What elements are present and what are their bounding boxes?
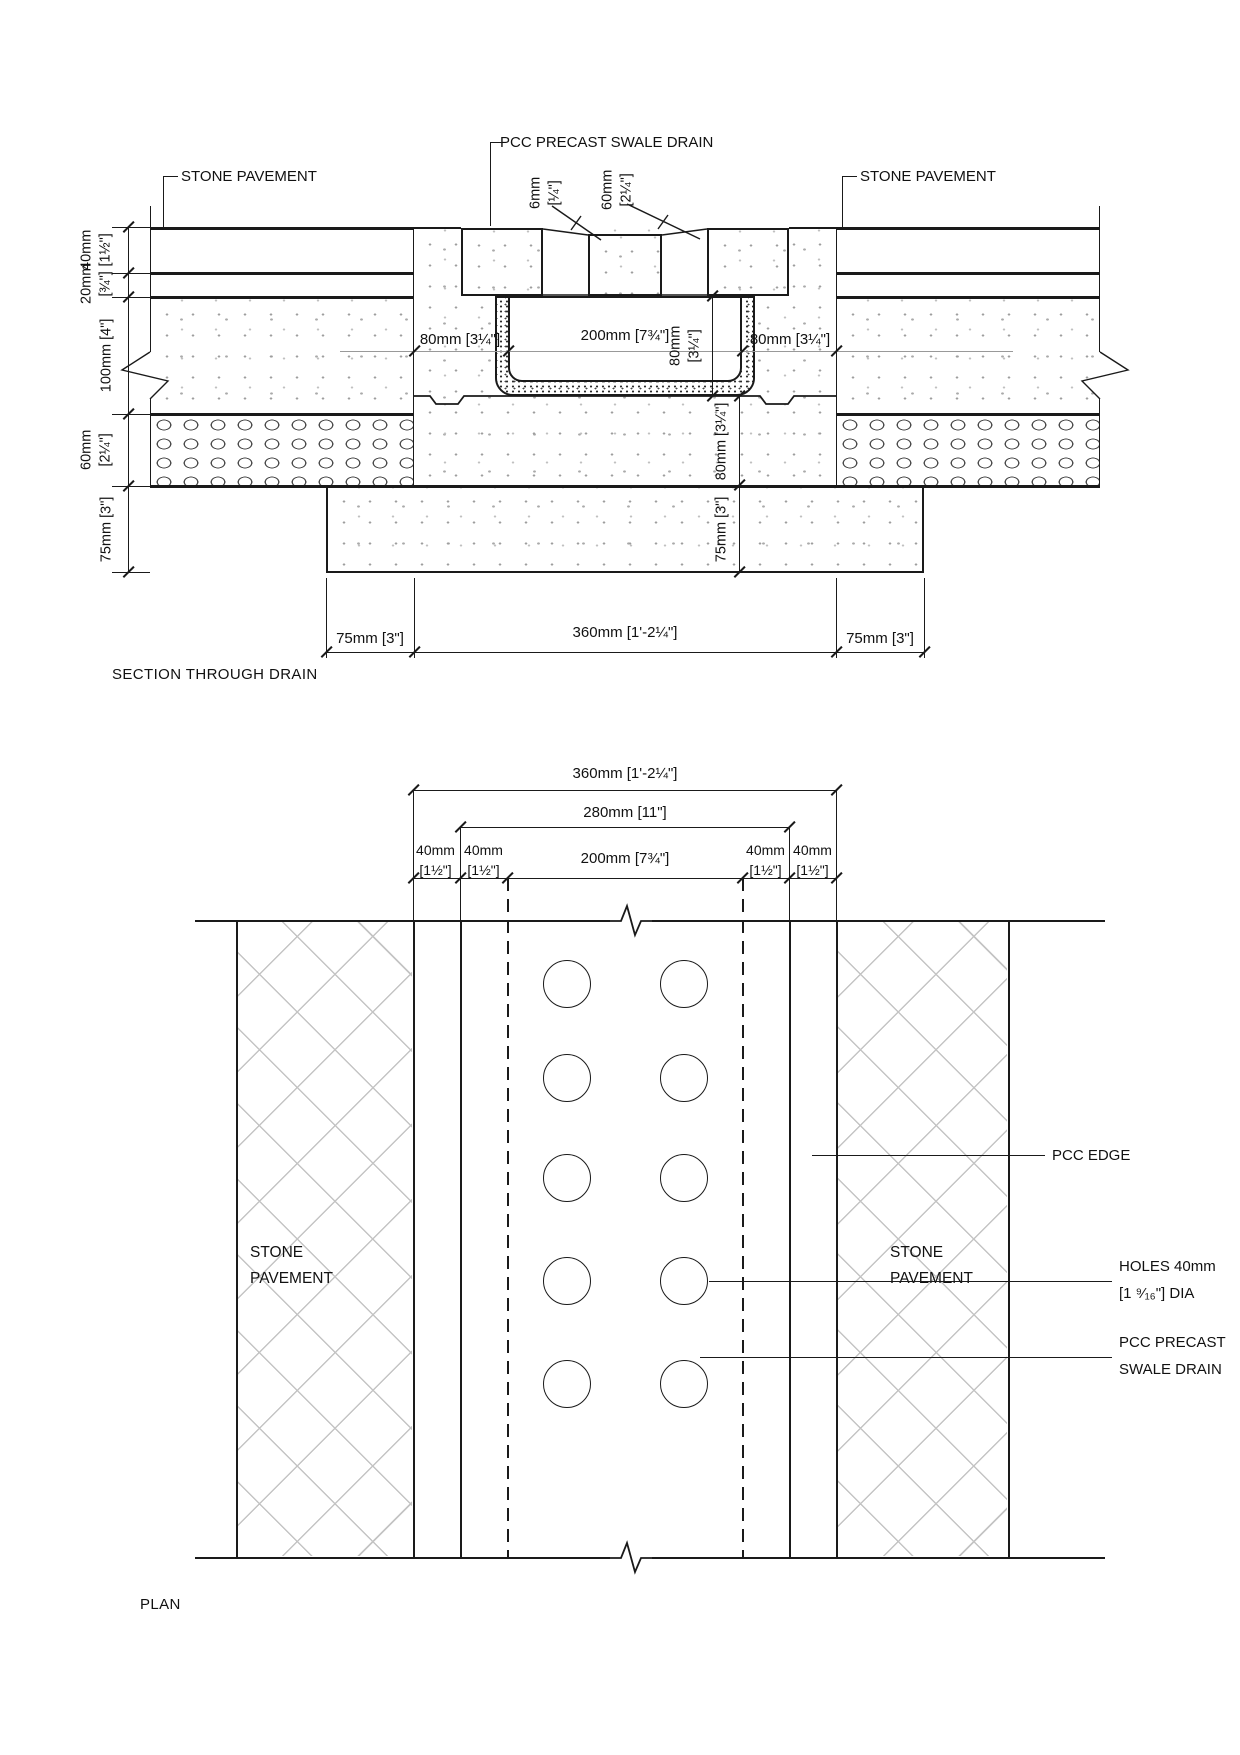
left-ext-6	[112, 572, 150, 573]
plan-dim-40-2: 40mm[1½"]	[460, 840, 507, 881]
leader	[163, 176, 164, 227]
plan-dim-40-3: 40mm[1½"]	[742, 840, 789, 881]
bottom-dim-75-left: 75mm [3"]	[322, 630, 418, 647]
plan-precast-edge-right	[789, 921, 791, 1557]
drawing-canvas: 40mm[1½"] 20mm[¾"] 100mm [4"] 60mm[2¼"] …	[0, 0, 1240, 1755]
left-ext-4	[112, 414, 150, 415]
drain-hole	[543, 960, 591, 1008]
concrete-bottom-line-left	[150, 413, 414, 416]
drain-hole	[543, 1054, 591, 1102]
concrete-layer-right	[837, 299, 1099, 413]
leader	[490, 142, 502, 143]
plan-pavement-outer-right	[1008, 921, 1010, 1557]
dim-100mm-label: 100mm [4"]	[77, 325, 137, 385]
under-dim-75-label: 75mm [3"]	[692, 499, 752, 559]
gravel-bottom-line	[150, 485, 1100, 488]
plan-top-border	[195, 920, 610, 922]
drain-slot-right	[662, 229, 707, 294]
stone-bottom-line-right	[836, 272, 1100, 275]
leader	[812, 1155, 1045, 1156]
drain-hole	[660, 1054, 708, 1102]
plan-dim-280: 280mm [11"]	[560, 804, 690, 821]
plan-precast-label-line1: PCC PRECAST	[1119, 1334, 1226, 1351]
wall-dim-right: 80mm [3¼"]	[740, 331, 840, 348]
plan-bottom-border	[652, 1557, 1105, 1559]
gravel-layer-left	[151, 416, 413, 485]
dim-6mm-label: 6mm[¼"]	[515, 163, 575, 223]
precast-top-block-left	[461, 228, 543, 296]
dim-20mm-label: 20mm[¾"]	[66, 254, 126, 314]
bottom-dim-360: 360mm [1'-2¼"]	[540, 624, 710, 641]
surround-surface-right	[789, 227, 836, 229]
section-title: SECTION THROUGH DRAIN	[112, 666, 318, 683]
leader	[842, 176, 857, 177]
bedding-bottom-line-right	[836, 296, 1100, 299]
dim-60mm-top-label: 60mm[2¼"]	[587, 160, 647, 220]
surround-surface-left	[413, 227, 461, 229]
plan-precast-edge-left	[460, 921, 462, 1557]
precast-top-block-center	[588, 234, 662, 296]
surface-line-left	[150, 227, 414, 230]
break-symbol-bottom	[610, 1543, 652, 1572]
plan-surround-edge-left	[413, 921, 415, 1557]
stone-pavement-label-left: STONE PAVEMENT	[181, 168, 317, 185]
leader	[163, 176, 178, 177]
plan-dim-360-line	[413, 790, 836, 791]
base-slab	[326, 486, 924, 573]
stone-pavement-label-right: STONE PAVEMENT	[860, 168, 996, 185]
plan-channel-hidden-left	[507, 878, 509, 1557]
plan-pavement-left	[237, 922, 412, 1556]
plan-pavement-right	[838, 922, 1007, 1556]
gravel-layer-right	[837, 416, 1099, 485]
plan-precast-label-line2: SWALE DRAIN	[1119, 1361, 1222, 1378]
plan-pavement-outer-left	[236, 921, 238, 1557]
bedding-bottom-line-left	[150, 296, 414, 299]
right-edge-upper	[1099, 206, 1100, 352]
leader	[490, 142, 491, 226]
left-edge-lower	[150, 399, 151, 488]
right-edge-lower	[1099, 399, 1100, 488]
plan-ext	[836, 790, 837, 920]
precast-drain-label: PCC PRECAST SWALE DRAIN	[500, 134, 713, 151]
concrete-bottom-line-right	[836, 413, 1100, 416]
pcc-edge-label: PCC EDGE	[1052, 1147, 1130, 1164]
bottom-dim-75-right: 75mm [3"]	[832, 630, 928, 647]
holes-label-line1: HOLES 40mm	[1119, 1258, 1216, 1275]
left-ext-5	[112, 486, 150, 487]
plan-dim-360: 360mm [1'-2¼"]	[540, 765, 710, 782]
rim-depth-label: 80mm[3¼"]	[655, 316, 715, 376]
stone-bottom-line-left	[150, 272, 414, 275]
plan-surround-edge-right	[836, 921, 838, 1557]
leader	[700, 1357, 1112, 1358]
left-edge-upper	[150, 206, 151, 352]
plan-stone-label-left: STONEPAVEMENT	[250, 1240, 333, 1293]
drain-hole	[660, 960, 708, 1008]
drain-hole	[543, 1360, 591, 1408]
dim-60mm-label: 60mm[2¼"]	[66, 420, 126, 480]
leader	[842, 176, 843, 227]
plan-dim-40-4: 40mm[1½"]	[789, 840, 836, 881]
drain-hole	[660, 1257, 708, 1305]
pavement-inner-edge-left	[413, 227, 414, 486]
under-dim-80-label: 80mm [3¼"]	[692, 411, 752, 471]
concrete-layer-left	[151, 299, 413, 413]
plan-dim-200: 200mm [7¾"]	[552, 850, 698, 867]
plan-title: PLAN	[140, 1596, 181, 1613]
plan-dim-280-line	[460, 827, 789, 828]
plan-channel-hidden-right	[742, 878, 744, 1557]
plan-stone-label-right: STONEPAVEMENT	[890, 1240, 973, 1293]
plan-bottom-border	[195, 1557, 610, 1559]
drain-hole	[543, 1257, 591, 1305]
leader	[709, 1281, 1112, 1282]
plan-dim-40-1: 40mm[1½"]	[412, 840, 459, 881]
leader-tick	[658, 215, 668, 229]
plan-top-border	[652, 920, 1105, 922]
surface-line-right	[836, 227, 1100, 230]
drain-hole	[543, 1154, 591, 1202]
pavement-inner-edge-right	[836, 227, 837, 486]
dim-75mm-label: 75mm [3"]	[77, 499, 137, 559]
break-symbol-top	[610, 906, 652, 935]
wall-dim-left: 80mm [3¼"]	[410, 331, 510, 348]
precast-top-block-right	[707, 228, 789, 296]
drain-hole	[660, 1360, 708, 1408]
drain-slot-left	[543, 229, 588, 294]
drain-hole	[660, 1154, 708, 1202]
holes-label-line2: [1 ⁹⁄₁₆"] DIA	[1119, 1285, 1194, 1302]
